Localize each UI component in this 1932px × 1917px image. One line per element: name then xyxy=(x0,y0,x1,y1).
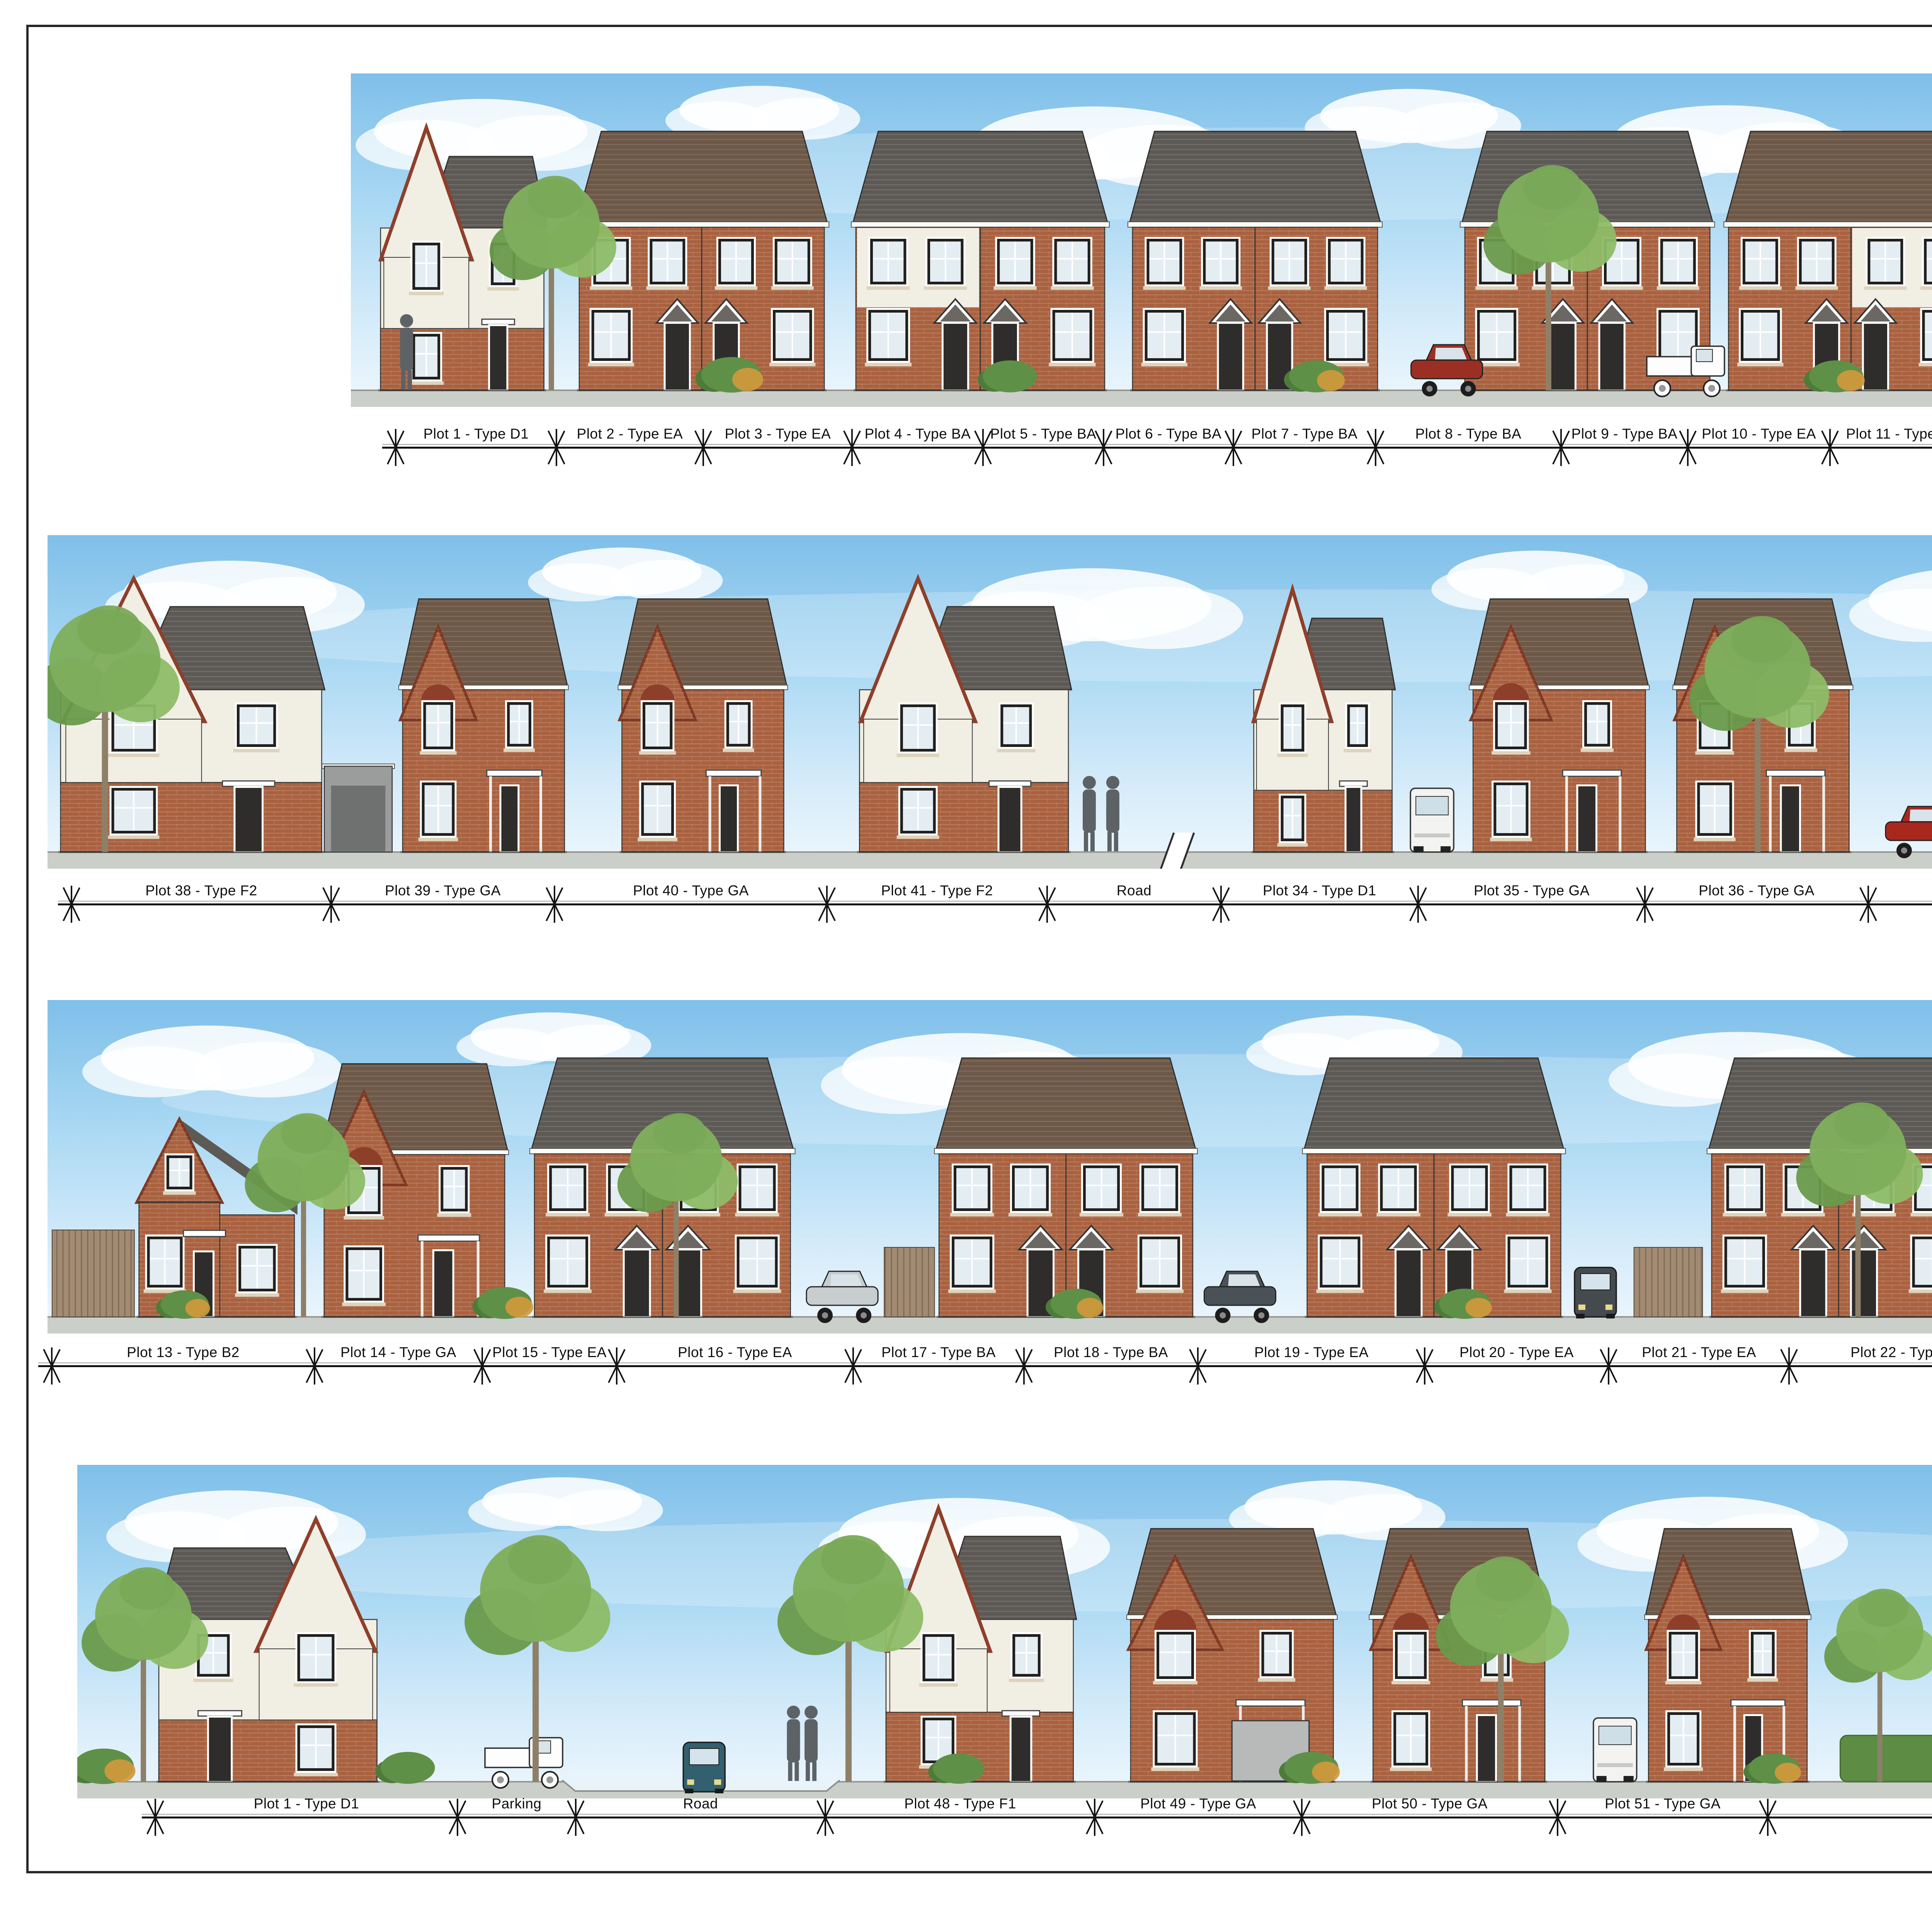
person xyxy=(787,1706,800,1781)
pair xyxy=(1724,131,1932,391)
panel-elevation-1 xyxy=(351,73,1932,407)
plot-label: Parking xyxy=(492,1796,542,1812)
plot-label: Plot 36 - Type GA xyxy=(1699,883,1815,899)
car xyxy=(1886,806,1932,858)
plot-label: Plot 15 - Type EA xyxy=(492,1344,607,1361)
artwork-elevation-4 xyxy=(77,1465,1932,1798)
dimension-line-upper xyxy=(38,1362,1932,1363)
plot-label: Plot 2 - Type EA xyxy=(577,426,683,442)
pair xyxy=(1303,1058,1566,1318)
pair xyxy=(934,1058,1197,1318)
vanfront xyxy=(1594,1718,1637,1782)
panel-elevation-2 xyxy=(48,535,1932,869)
plot-label: Plot 7 - Type BA xyxy=(1252,426,1358,442)
plot-label: Plot 21 - Type EA xyxy=(1642,1344,1756,1361)
plot-label: Plot 40 - Type GA xyxy=(633,883,749,899)
gbrick xyxy=(618,599,788,853)
plot-label: Plot 10 - Type EA xyxy=(1702,426,1816,442)
plot-label: Plot 19 - Type EA xyxy=(1254,1344,1369,1361)
artwork-elevation-1 xyxy=(351,73,1932,407)
plot-label: Plot 51 - Type GA xyxy=(1605,1796,1721,1812)
pair xyxy=(575,131,829,391)
fence xyxy=(52,1230,134,1317)
plot-label: Plot 9 - Type BA xyxy=(1571,426,1678,442)
dimension-line-upper xyxy=(58,901,1932,902)
bush xyxy=(77,1749,135,1784)
person xyxy=(1083,776,1096,851)
hedge xyxy=(1840,1735,1932,1782)
fence xyxy=(884,1247,934,1317)
plot-label: Plot 38 - Type F2 xyxy=(145,883,257,899)
plot-label: Plot 13 - Type B2 xyxy=(127,1344,240,1361)
bush xyxy=(376,1752,435,1784)
drawing-sheet: Plot 1 - Type D1Plot 2 - Type EAPlot 3 -… xyxy=(0,0,1932,1917)
plot-label: Plot 34 - Type D1 xyxy=(1263,883,1376,899)
artwork-elevation-3 xyxy=(48,1000,1932,1334)
plot-label: Plot 35 - Type GA xyxy=(1474,883,1590,899)
person xyxy=(804,1706,818,1781)
dimension-line xyxy=(58,903,1932,905)
gbrick xyxy=(1127,1529,1337,1783)
gbrick xyxy=(1469,599,1649,853)
plot-label: Plot 16 - Type EA xyxy=(678,1344,792,1361)
plot-label: Plot 39 - Type GA xyxy=(385,883,501,899)
dimension-line xyxy=(38,1365,1932,1367)
car xyxy=(1204,1271,1276,1323)
plot-label: Plot 1 - Type D1 xyxy=(254,1796,359,1812)
plot-label: Plot 5 - Type BA xyxy=(990,426,1097,442)
person xyxy=(1106,776,1119,851)
gbrick xyxy=(399,599,568,853)
pickup xyxy=(485,1738,563,1788)
plot-label: Plot 14 - Type GA xyxy=(340,1344,456,1361)
plot-label: Plot 3 - Type EA xyxy=(725,426,831,442)
plot-label: Plot 50 - Type GA xyxy=(1372,1796,1488,1812)
dimension-line xyxy=(142,1817,1932,1818)
dimension-line-upper xyxy=(142,1814,1932,1815)
dimension-line xyxy=(382,447,1932,449)
pair xyxy=(851,131,1109,391)
plot-label: Plot 48 - Type F1 xyxy=(904,1796,1016,1812)
pair xyxy=(1128,131,1382,391)
gbrick xyxy=(1645,1529,1811,1783)
carfront xyxy=(1575,1267,1616,1318)
panel-elevation-4 xyxy=(77,1465,1932,1798)
plot-label: Plot 18 - Type BA xyxy=(1054,1344,1168,1361)
car xyxy=(806,1271,878,1323)
plot-label: Plot 41 - Type F2 xyxy=(881,883,993,899)
plot-label: Road xyxy=(1117,883,1151,899)
carfront xyxy=(683,1742,725,1793)
artwork-elevation-2 xyxy=(48,535,1932,869)
plot-label: Plot 8 - Type BA xyxy=(1415,426,1522,442)
fence xyxy=(1634,1247,1703,1317)
plot-label: Plot 22 - Type EA xyxy=(1850,1344,1932,1361)
plot-label: Plot 20 - Type EA xyxy=(1459,1344,1574,1361)
plot-label: Plot 17 - Type BA xyxy=(881,1344,996,1361)
panel-elevation-3 xyxy=(48,1000,1932,1334)
plot-label: Plot 6 - Type BA xyxy=(1116,426,1222,442)
vanfront xyxy=(1410,788,1454,852)
garage xyxy=(322,764,395,852)
plot-label: Plot 49 - Type GA xyxy=(1140,1796,1256,1812)
plot-label: Plot 1 - Type D1 xyxy=(423,426,529,442)
dimension-line-upper xyxy=(382,444,1932,445)
plot-label: Road xyxy=(683,1796,718,1812)
plot-label: Plot 11 - Type EA xyxy=(1846,426,1932,442)
plot-label: Plot 4 - Type BA xyxy=(865,426,971,442)
